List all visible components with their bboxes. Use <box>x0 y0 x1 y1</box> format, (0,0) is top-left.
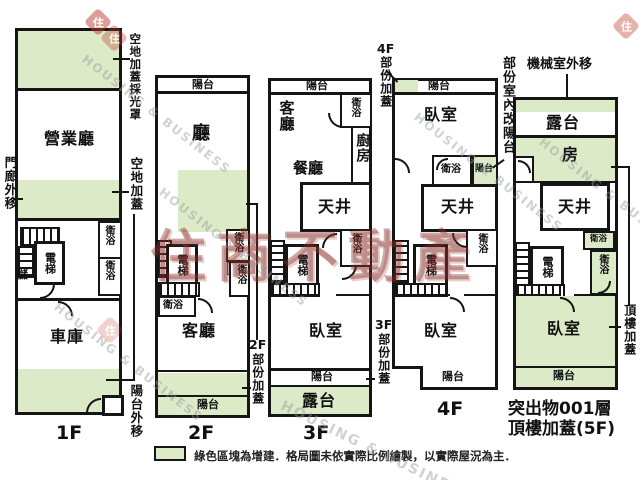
bathroom-label: 衛浴 <box>232 232 243 252</box>
leader-line <box>256 203 258 340</box>
addition-area-1f-mid <box>18 180 119 219</box>
terrace-label: 露台 <box>302 392 336 410</box>
leader-line <box>566 74 568 99</box>
bathroom-label: 衛浴 <box>476 233 487 253</box>
bathroom-label: 衛浴 <box>103 225 114 245</box>
storage-label: 儲 <box>17 269 28 281</box>
callout-2f-addition-prefix: 2F <box>249 338 266 352</box>
leader-line <box>106 379 134 381</box>
callout-porch-moved: 門廊外移 <box>2 156 16 210</box>
wall <box>513 294 560 296</box>
stairs <box>158 282 200 297</box>
addition-area-1f-top <box>18 31 119 88</box>
callout-4f-addition: 部份加蓋 <box>378 56 392 108</box>
bedroom-label: 臥室 <box>547 320 581 338</box>
wall <box>15 298 122 301</box>
lightwell-label: 天井 <box>441 198 475 216</box>
bathroom-label: 衛浴 <box>350 233 361 253</box>
elevator-box: 電梯 <box>166 244 198 286</box>
floor-caption-3f: 3F <box>303 422 329 444</box>
wall <box>98 257 122 259</box>
elevator-label: 電梯 <box>294 254 310 276</box>
wall <box>392 92 498 95</box>
wall <box>392 366 423 369</box>
legend-swatch <box>154 446 186 461</box>
room-label: 房 <box>562 146 579 164</box>
callout-machine-room: 機械室外移 <box>527 58 592 73</box>
callout-2f-addition: 部份加蓋 <box>250 353 264 405</box>
floor-caption-5f-line2: 頂樓加蓋(5F) <box>508 414 615 439</box>
entry-step <box>102 395 124 416</box>
business-hall-label: 營業廳 <box>44 130 95 148</box>
balcony-label: 陽台 <box>475 165 493 175</box>
wall <box>351 126 353 184</box>
callout-balcony-moved: 陽台外移 <box>128 384 142 438</box>
bathroom-label: 衛浴 <box>235 264 246 284</box>
callout-indoor-to-balcony: 部份室內改陽台 <box>499 56 514 154</box>
addition-area-2f-strip <box>158 373 247 395</box>
kitchen-label: 廚房 <box>354 133 369 163</box>
bedroom-label: 臥室 <box>424 106 458 124</box>
floor-caption-4f: 4F <box>437 398 463 420</box>
leader-line <box>609 326 621 328</box>
elevator-box: 電梯 <box>530 246 564 287</box>
callout-3f-addition: 部份加蓋 <box>376 333 390 385</box>
callout-3f-addition-prefix: 3F <box>375 318 392 332</box>
balcony-label: 陽台 <box>306 80 328 92</box>
wall <box>155 370 250 372</box>
stairs <box>515 242 530 288</box>
legend-note: 綠色區塊為增建．格局圖未依實際比例繪製，以實際屋況為主． <box>194 448 516 464</box>
brand-stamp-icon: 住 <box>612 12 640 40</box>
bathroom-label: 衛浴 <box>103 260 114 280</box>
wall <box>392 294 450 296</box>
wall <box>532 158 534 182</box>
floor-caption-2f: 2F <box>188 422 214 444</box>
hall-label: 廳 <box>192 124 210 144</box>
callout-skylight-cover: 空地加蓋採光罩 <box>128 33 141 121</box>
floor-caption-1f: 1F <box>56 422 82 444</box>
balcony-label: 陽台 <box>192 79 214 91</box>
wall <box>155 91 250 94</box>
callout-4f-addition-prefix: 4F <box>377 42 394 56</box>
elevator-label: 電梯 <box>42 252 58 274</box>
leader-line <box>366 378 375 380</box>
wall <box>516 156 534 158</box>
wall <box>574 294 618 296</box>
lightwell-label: 天井 <box>318 198 352 216</box>
garage-label: 車庫 <box>50 328 84 346</box>
leader-line <box>628 166 630 306</box>
elevator-label: 電梯 <box>423 254 439 276</box>
leader-line <box>133 214 135 381</box>
terrace-label: 露台 <box>546 114 580 132</box>
bedroom-label: 臥室 <box>424 322 458 340</box>
callout-rooftop-addition: 頂樓加蓋 <box>622 304 636 356</box>
wall <box>268 294 320 296</box>
bathroom-label: 衛浴 <box>163 300 183 311</box>
wall <box>15 88 122 91</box>
elevator-box: 電梯 <box>285 244 319 286</box>
bathroom-label: 衛浴 <box>349 97 360 117</box>
callout-land-addition: 空地加蓋 <box>128 157 142 211</box>
addition-area-2f <box>178 170 247 232</box>
lightwell-label: 天井 <box>558 198 592 216</box>
addition-area-5f-machine <box>516 100 615 112</box>
wall <box>420 366 423 390</box>
elevator-label: 電梯 <box>174 254 190 276</box>
floorplan-canvas: 電梯 儲 衛浴 衛浴 營業廳 車庫 1F 空地加蓋採光罩 門廊外移 空地加蓋 陽… <box>0 0 640 480</box>
stairs <box>270 240 285 284</box>
dining-label: 餐廳 <box>293 160 323 177</box>
leader-line <box>112 191 129 193</box>
balcony-label: 陽台 <box>553 370 575 382</box>
elevator-label: 電梯 <box>539 256 555 278</box>
bedroom-label: 臥室 <box>309 322 343 340</box>
living-room-label: 客廳 <box>182 322 216 340</box>
elevator-box: 電梯 <box>413 244 448 286</box>
balcony-label: 陽台 <box>311 371 333 383</box>
wall <box>464 294 498 296</box>
balcony-label: 陽台 <box>442 371 464 383</box>
stairs <box>394 240 409 284</box>
wall <box>336 294 372 296</box>
living-room-label: 客廳 <box>278 100 295 132</box>
bathroom-label: 衛浴 <box>590 235 607 244</box>
balcony-label: 陽台 <box>428 80 450 92</box>
balcony-label: 陽台 <box>197 399 219 411</box>
elevator-box: 電梯 <box>34 241 65 285</box>
notch-mask <box>389 369 422 391</box>
bathroom-label: 衛浴 <box>597 254 608 274</box>
bathroom-label: 衛浴 <box>441 164 461 175</box>
brand-stamp-char: 住 <box>621 18 632 34</box>
